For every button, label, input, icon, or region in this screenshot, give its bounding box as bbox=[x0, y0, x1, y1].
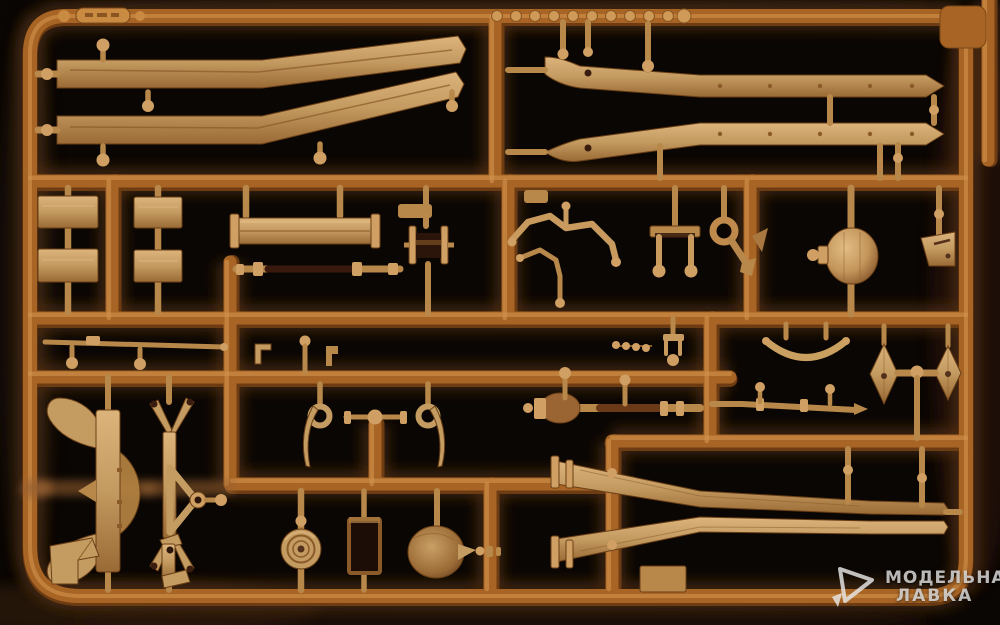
dark-frame-block bbox=[349, 491, 380, 590]
segmented-axle-rod bbox=[236, 262, 400, 276]
bumper-beam bbox=[230, 188, 380, 248]
frame-corner-pad bbox=[940, 6, 986, 48]
chassis-rail-pair-right bbox=[508, 22, 944, 178]
wheel-hub-disc bbox=[281, 491, 321, 590]
differential-dome bbox=[807, 188, 878, 314]
bead-strip bbox=[612, 341, 652, 352]
u-bracket bbox=[650, 188, 700, 278]
tapered-axle bbox=[712, 382, 868, 415]
sprue-photo-svg bbox=[0, 0, 1000, 625]
photo-stage: МОДЕЛЬНАЯ ЛАВКА bbox=[0, 0, 1000, 625]
